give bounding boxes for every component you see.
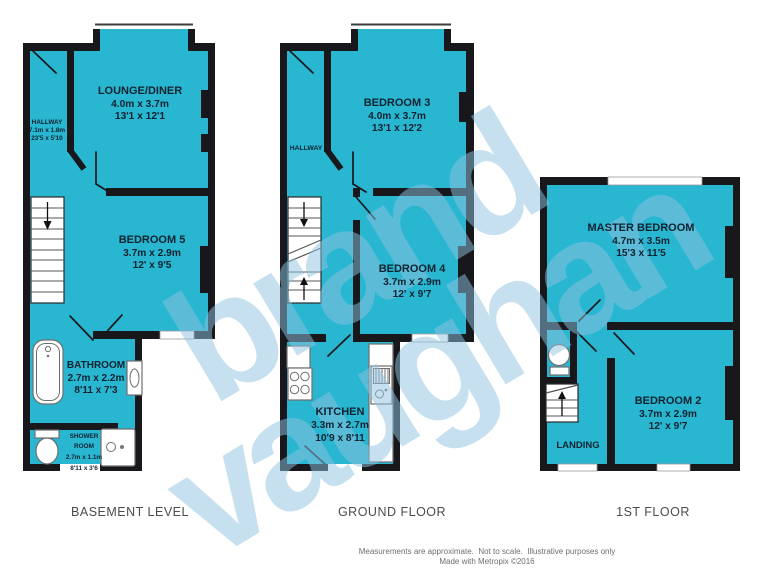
- bathtub: [33, 340, 63, 404]
- shower-tray: [101, 429, 135, 466]
- room-size-metric-bedroom5: 3.7m x 2.9m: [123, 248, 181, 259]
- room-size-imperial-kitchen: 10'9 x 8'11: [315, 433, 365, 444]
- room-name-bedroom2: BEDROOM 2: [635, 395, 702, 407]
- footer-disclaimer: Measurements are approximate. Not to sca…: [359, 547, 616, 556]
- room-name-hallway-basement: HALLWAY: [32, 119, 63, 126]
- room-size-metric-bedroom4: 3.7m x 2.9m: [383, 277, 441, 288]
- floorplan-image: brand vaughan HALLWAY 7.1m x 1.8m 23'5 x…: [0, 0, 768, 568]
- window: [657, 464, 690, 471]
- room-name-bedroom4: BEDROOM 4: [379, 263, 447, 275]
- room-name-lounge-diner: LOUNGE/DINER: [98, 85, 182, 97]
- floor-label-first: 1ST FLOOR: [616, 505, 690, 519]
- room-size-metric-bedroom2: 3.7m x 2.9m: [639, 409, 697, 420]
- room-size-metric-bathroom: 2.7m x 2.2m: [68, 373, 125, 384]
- room-size-imperial-hallway-basement: 23'5 x 5'10: [31, 135, 63, 142]
- room-size-metric-shower-room: 2.7m x 1.1m: [66, 454, 103, 461]
- room-size-metric-master-bedroom: 4.7m x 3.5m: [612, 236, 670, 247]
- room-size-imperial-bedroom2: 12' x 9'7: [649, 421, 688, 432]
- room-size-metric-lounge-diner: 4.0m x 3.7m: [111, 99, 169, 110]
- stairs-basement: [31, 197, 64, 303]
- room-size-imperial-bedroom4: 12' x 9'7: [393, 289, 432, 300]
- room-name-bathroom: BATHROOM: [67, 360, 125, 371]
- floor-label-ground: GROUND FLOOR: [338, 505, 446, 519]
- bay-window-area: [100, 29, 188, 51]
- floor-label-basement: BASEMENT LEVEL: [71, 505, 189, 519]
- room-size-imperial-bathroom: 8'11 x 7'3: [74, 385, 118, 396]
- floorplan-page: brand vaughan HALLWAY 7.1m x 1.8m 23'5 x…: [0, 0, 768, 568]
- room-name-bedroom3: BEDROOM 3: [364, 97, 431, 109]
- room-name-kitchen: KITCHEN: [316, 406, 365, 418]
- toilet-basement: [35, 430, 59, 464]
- room-name-hallway-ground: HALLWAY: [290, 145, 323, 152]
- room-name-bedroom5: BEDROOM 5: [119, 234, 186, 246]
- room-name-master-bedroom: MASTER BEDROOM: [588, 222, 695, 234]
- room-name-shower-room-line2: ROOM: [74, 443, 94, 450]
- room-size-imperial-master-bedroom: 15'3 x 11'5: [616, 248, 666, 259]
- bay-window-area: [358, 29, 444, 51]
- room-size-metric-hallway-basement: 7.1m x 1.8m: [29, 127, 66, 134]
- room-name-landing: LANDING: [556, 440, 599, 451]
- room-size-metric-bedroom3: 4.0m x 3.7m: [368, 111, 426, 122]
- bathroom-sink: [127, 361, 142, 395]
- room-size-metric-kitchen: 3.3m x 2.7m: [311, 420, 369, 431]
- floor-titles: BASEMENT LEVEL GROUND FLOOR 1ST FLOOR: [71, 505, 690, 519]
- room-size-imperial-bedroom5: 12' x 9'5: [133, 260, 172, 271]
- room-size-imperial-shower-room: 8'11 x 3'6: [70, 465, 98, 472]
- room-size-imperial-bedroom3: 13'1 x 12'2: [372, 123, 423, 134]
- room-size-imperial-lounge-diner: 13'1 x 12'1: [115, 111, 166, 122]
- footer: Measurements are approximate. Not to sca…: [359, 547, 616, 566]
- room-name-shower-room-line1: SHOWER: [70, 433, 99, 440]
- window: [558, 464, 597, 471]
- footer-credit: Made with Metropix ©2016: [439, 557, 535, 566]
